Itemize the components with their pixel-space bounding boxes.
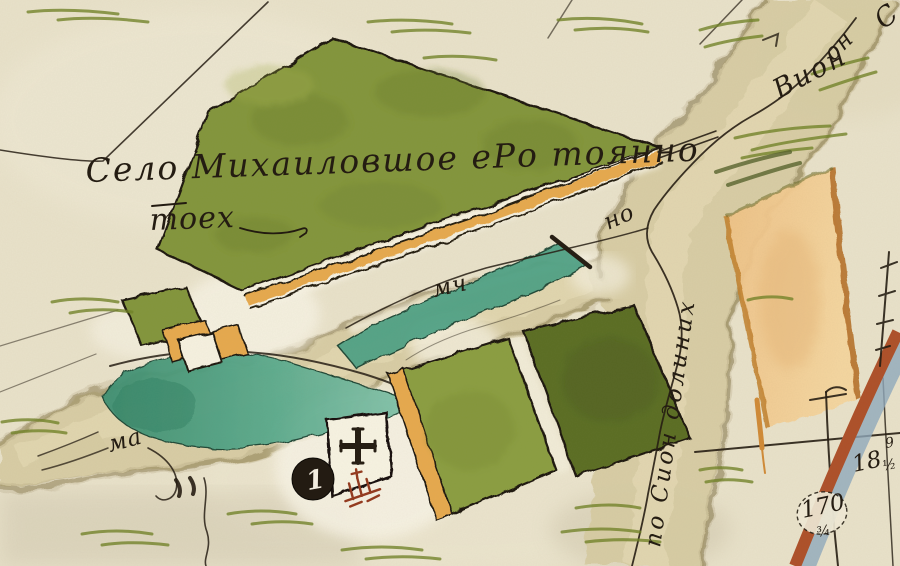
map-canvas: Село Михаиловшое еРо тоянно тоех Вион он… (0, 0, 900, 566)
map-scan: Село Михаиловшое еРо тоянно тоех Вион он… (0, 0, 900, 566)
marker-1-badge[interactable]: 1 (292, 458, 334, 500)
